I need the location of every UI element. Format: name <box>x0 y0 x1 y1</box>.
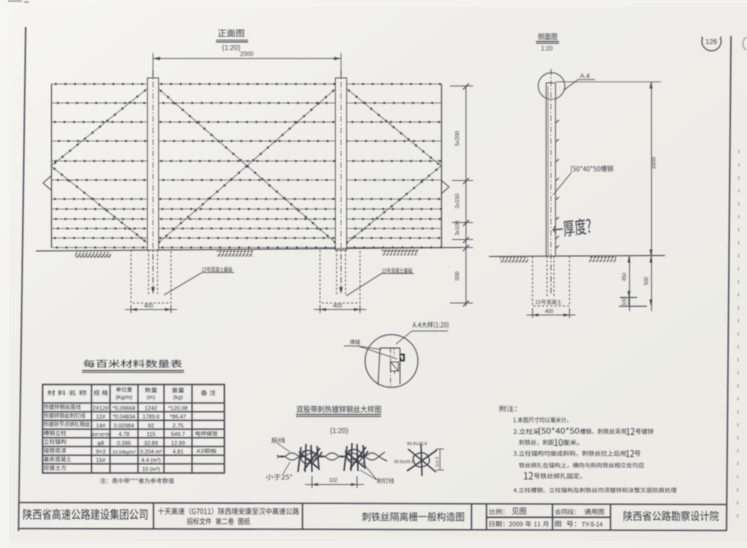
svg-text:2000: 2000 <box>240 52 254 58</box>
svg-text:14#: 14# <box>96 423 106 429</box>
svg-text:*86.47: *86.47 <box>170 415 186 421</box>
svg-text:92: 92 <box>148 423 154 429</box>
svg-text:12#: 12# <box>96 415 106 421</box>
svg-text:(Kg/m): (Kg/m) <box>116 395 133 401</box>
svg-text:126: 126 <box>705 39 717 46</box>
svg-text:115: 115 <box>147 432 156 438</box>
svg-text:10 (m³): 10 (m³) <box>142 467 160 473</box>
svg-text:2.75: 2.75 <box>173 423 184 429</box>
svg-text:32.89: 32.89 <box>144 441 158 447</box>
svg-text:549.7: 549.7 <box>171 432 185 438</box>
svg-text:*0.09668: *0.09668 <box>113 406 135 412</box>
svg-text:400: 400 <box>333 304 342 310</box>
svg-text:23.59kg/m²: 23.59kg/m² <box>113 450 136 455</box>
svg-text:100: 100 <box>622 297 628 306</box>
svg-text:*0.04834: *0.04834 <box>113 415 135 421</box>
svg-text:400: 400 <box>144 304 153 310</box>
svg-text:4.78: 4.78 <box>119 432 130 438</box>
svg-text:(m): (m) <box>147 395 156 401</box>
svg-text:1242: 1242 <box>145 406 157 412</box>
svg-text:1789.6: 1789.6 <box>142 415 159 421</box>
svg-text:1600: 1600 <box>652 157 658 169</box>
svg-text:A.4: A.4 <box>580 73 590 80</box>
svg-text:δ=3: δ=3 <box>96 450 106 456</box>
svg-text:15#: 15# <box>96 458 106 464</box>
svg-text:500: 500 <box>455 271 461 280</box>
svg-text:*120.08: *120.08 <box>168 406 187 412</box>
svg-text:5x200: 5x200 <box>455 131 461 146</box>
svg-text:0.02984: 0.02984 <box>114 423 134 429</box>
svg-text:400: 400 <box>545 309 554 315</box>
svg-text:3x100: 3x100 <box>455 221 461 236</box>
svg-text:2X12#: 2X12# <box>93 406 110 412</box>
svg-text:0.204 m²: 0.204 m² <box>140 450 162 456</box>
svg-text:4.4 (m³): 4.4 (m³) <box>141 458 161 464</box>
svg-text:TY-5-14: TY-5-14 <box>582 523 604 529</box>
svg-text:1:20: 1:20 <box>541 47 553 53</box>
svg-text:114.3: 114.3 <box>435 456 440 467</box>
svg-text:2x150: 2x150 <box>455 194 461 209</box>
svg-text:90.8±20.8: 90.8±20.8 <box>407 441 427 446</box>
svg-text:500: 500 <box>644 277 650 286</box>
svg-text:450*40*50: 450*40*50 <box>90 432 111 437</box>
svg-text:12.99: 12.99 <box>171 441 185 447</box>
svg-text:102: 102 <box>329 478 338 484</box>
svg-text:φ8: φ8 <box>97 441 104 447</box>
svg-text:90.8±20.8: 90.8±20.8 <box>394 459 414 464</box>
svg-text:4.81: 4.81 <box>173 450 184 456</box>
svg-text:(kg): (kg) <box>173 395 183 401</box>
svg-text:(1:20): (1:20) <box>330 428 348 435</box>
svg-text:450: 450 <box>622 273 628 282</box>
svg-text:0.395: 0.395 <box>117 441 131 447</box>
svg-text:(1:20): (1:20) <box>222 45 240 52</box>
